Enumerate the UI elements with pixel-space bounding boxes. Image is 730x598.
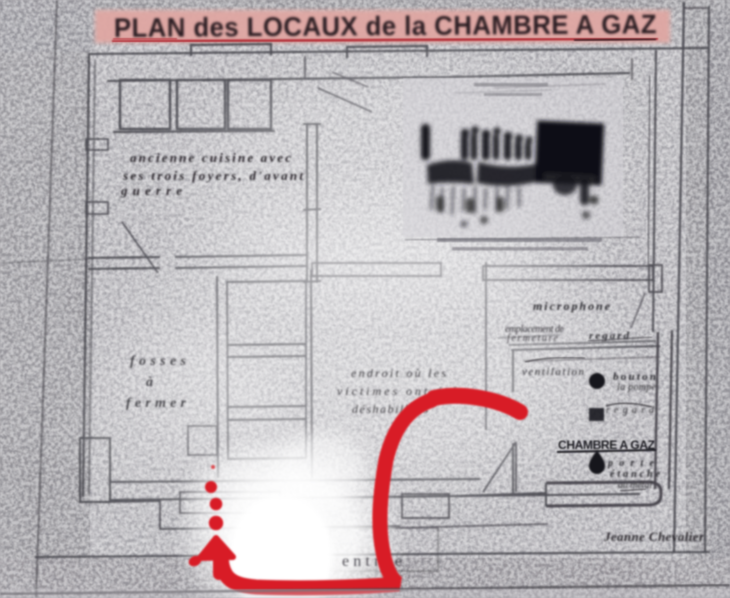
svg-text:fermeture: fermeture [507,333,559,344]
svg-text:microphone: microphone [533,299,611,313]
svg-text:Jeanne Chevalier: Jeanne Chevalier [603,529,705,544]
svg-text:à: à [146,375,153,390]
svg-text:la pompe: la pompe [617,382,657,393]
svg-text:ventilation: ventilation [522,366,585,378]
